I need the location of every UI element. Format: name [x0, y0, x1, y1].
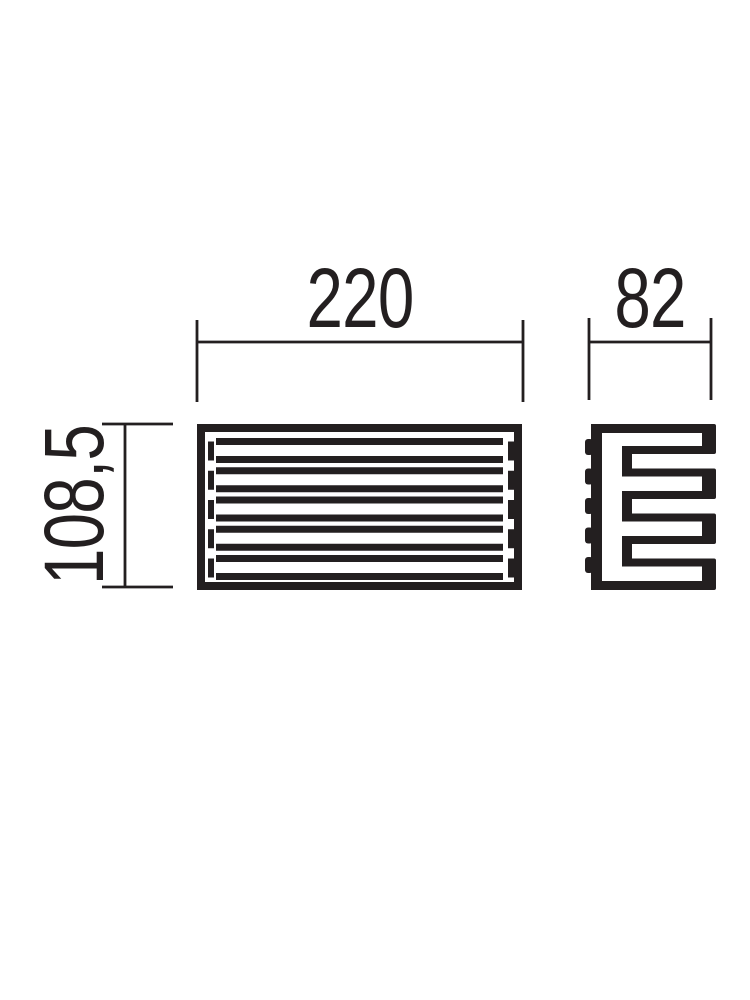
width-dimension-label: 220	[307, 251, 414, 345]
louver-row	[208, 555, 514, 580]
louver-row	[208, 438, 514, 463]
louver-end-tick	[208, 559, 214, 578]
louver-profile-line	[622, 536, 711, 544]
louver-end-tick	[208, 471, 214, 490]
dimension-height: 108,5	[27, 424, 173, 587]
louver-end-tick	[508, 500, 514, 519]
louver-line	[216, 573, 503, 580]
louver-row	[208, 497, 514, 522]
louver-row	[208, 526, 514, 551]
louver-line	[216, 467, 503, 474]
louver-profile-line	[622, 514, 711, 522]
louver-end-tick	[208, 529, 214, 548]
louver-profile-line	[622, 469, 711, 477]
louver-line	[216, 438, 503, 445]
technical-drawing-page: 220 82 108,5	[0, 0, 750, 1000]
front-view	[201, 428, 518, 586]
louver-end-tick	[208, 500, 214, 519]
back-plate	[591, 424, 602, 590]
front-frame	[201, 428, 518, 586]
louver-line	[216, 497, 503, 504]
louver-line	[216, 544, 503, 551]
louver-right-cap	[702, 514, 716, 545]
louver-end-tick	[508, 529, 514, 548]
top-wall	[591, 424, 711, 433]
louver-row	[208, 467, 514, 492]
louver-right-cap	[702, 424, 716, 454]
depth-dimension-label: 82	[614, 251, 685, 345]
louver-end-tick	[508, 471, 514, 490]
louver-left-cap	[622, 491, 632, 522]
louver-left-cap	[622, 536, 632, 567]
dimension-width: 220	[197, 251, 523, 402]
dimension-drawing: 220 82 108,5	[0, 0, 750, 1000]
louver-right-cap	[702, 469, 716, 500]
louver-line	[216, 515, 503, 522]
louver-right-cap	[702, 559, 716, 591]
louver-profile-line	[622, 446, 711, 454]
louver-line	[216, 485, 503, 492]
bottom-wall	[591, 581, 711, 590]
louver-end-tick	[508, 559, 514, 578]
side-view	[585, 424, 716, 590]
louver-line	[216, 555, 503, 562]
height-dimension-label: 108,5	[27, 425, 121, 585]
louver-end-tick	[508, 442, 514, 461]
louver-profile-line	[622, 491, 711, 499]
dimension-depth: 82	[589, 251, 711, 400]
louver-end-tick	[208, 442, 214, 461]
louver-line	[216, 456, 503, 463]
louver-line	[216, 526, 503, 533]
louver-left-cap	[622, 446, 632, 477]
louver-profile-line	[622, 559, 711, 567]
